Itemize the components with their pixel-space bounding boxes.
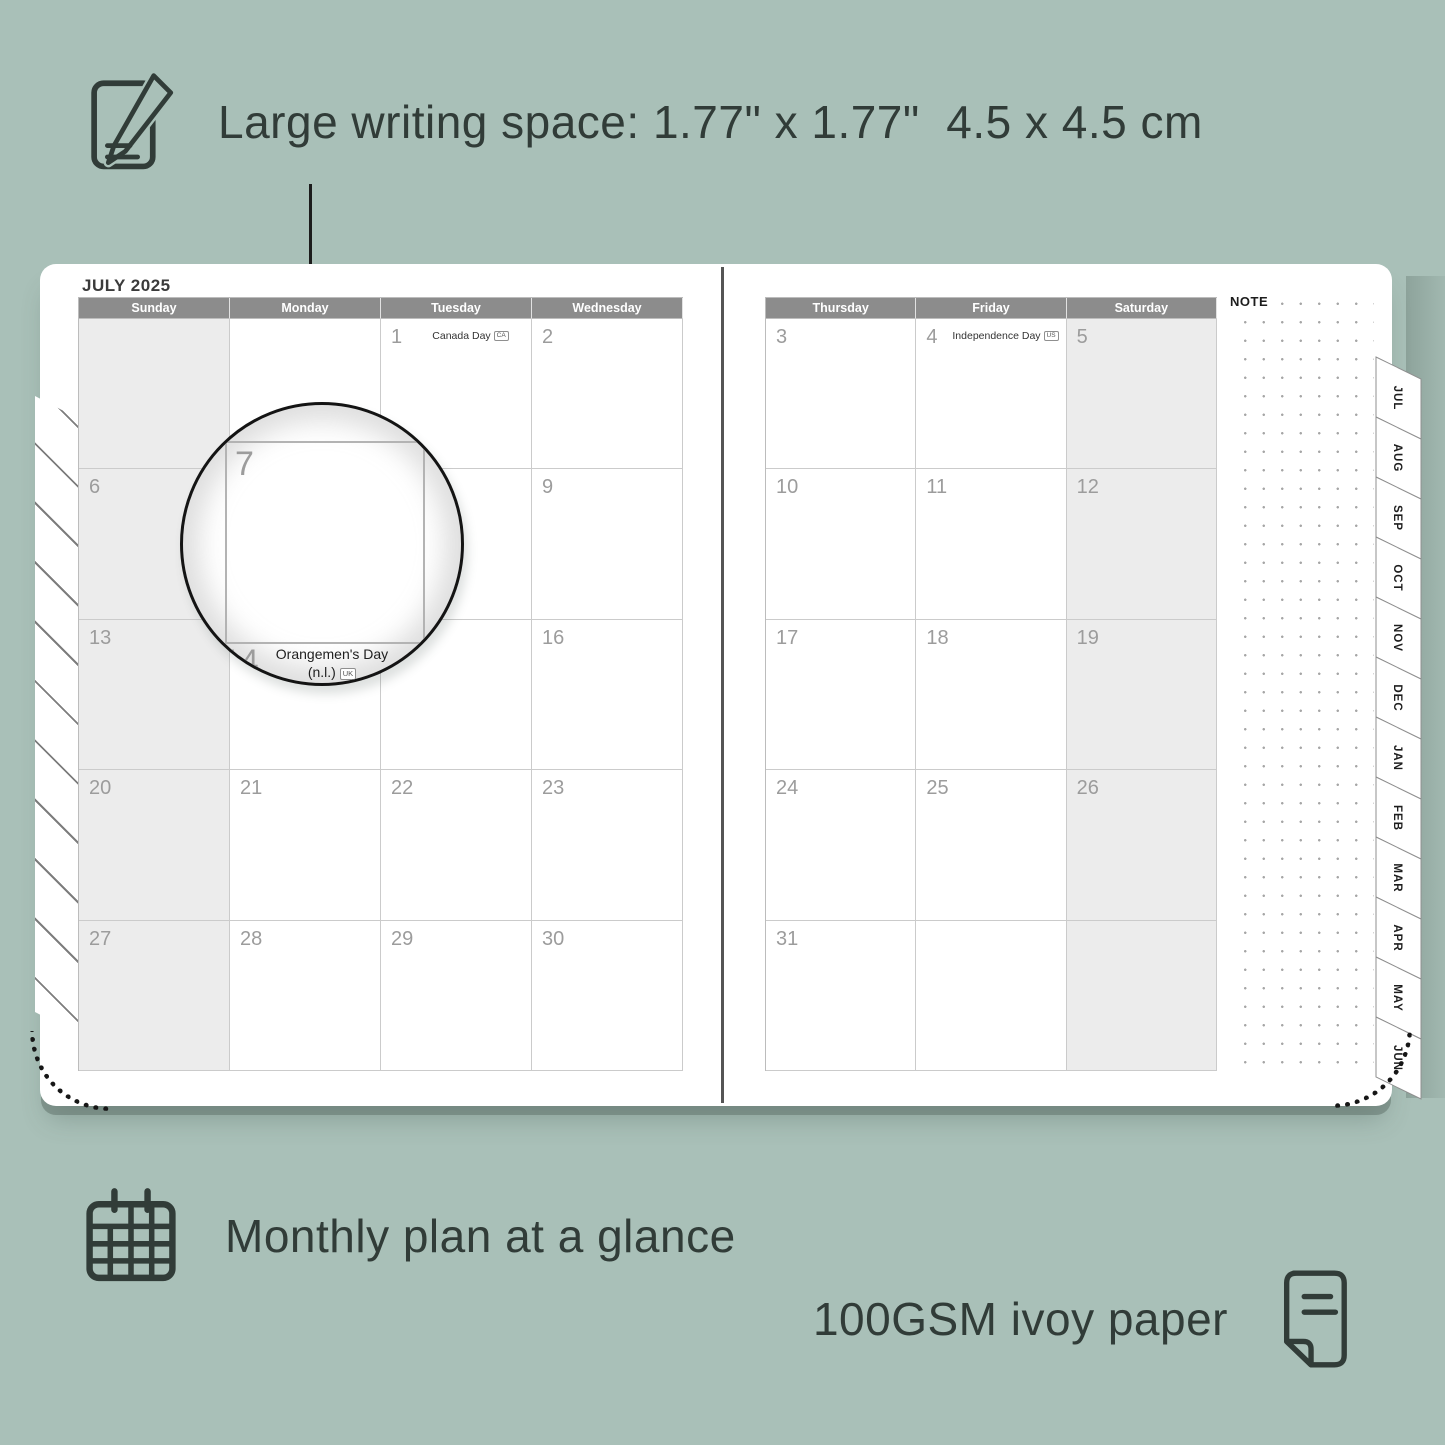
note-label: NOTE xyxy=(1230,294,1274,309)
holiday-label: Canada DayCA xyxy=(415,330,526,342)
day-number: 16 xyxy=(542,627,564,650)
paper-annotation: 100GSM ivoy paper xyxy=(813,1266,1352,1371)
holiday-label: Independence DayUS xyxy=(950,330,1060,342)
day-header: Saturday xyxy=(1067,298,1217,319)
day-number: 4 xyxy=(926,326,937,349)
calendar-cell: 17 xyxy=(766,620,916,770)
calendar-cell: 4Independence DayUS xyxy=(916,319,1066,469)
calendar-cell: 25 xyxy=(916,770,1066,920)
month-tabs: JULAUGSEPOCTNOVDECJANFEBMARAPRMAYJUN xyxy=(1375,357,1427,1103)
day-number: 22 xyxy=(391,777,413,800)
day-number: 13 xyxy=(89,627,111,650)
day-number: 3 xyxy=(776,326,787,349)
day-number: 25 xyxy=(926,777,948,800)
calendar-cell: 19 xyxy=(1067,620,1217,770)
day-number: 1 xyxy=(391,326,402,349)
paper-text: 100GSM ivoy paper xyxy=(813,1292,1228,1346)
calendar-cell: 5 xyxy=(1067,319,1217,469)
day-number: 21 xyxy=(240,777,262,800)
holiday-text: Independence Day xyxy=(952,330,1040,342)
calendar-cell: 12 xyxy=(1067,469,1217,619)
calendar-cell: 9 xyxy=(532,469,683,619)
day-number: 18 xyxy=(926,627,948,650)
month-tab-label: AUG xyxy=(1391,444,1403,473)
calendar-cell: 13 xyxy=(79,620,230,770)
monthly-plan-text: Monthly plan at a glance xyxy=(225,1209,736,1263)
calendar-cell: 31 xyxy=(766,921,916,1071)
day-number: 2 xyxy=(542,326,553,349)
day-number: 19 xyxy=(1077,627,1099,650)
day-number: 10 xyxy=(776,476,798,499)
right-month-grid: ThursdayFridaySaturday34Independence Day… xyxy=(765,297,1217,1071)
month-tab-label: FEB xyxy=(1391,805,1403,831)
planner-spread: JULY 2025 SundayMondayTuesdayWednesday1C… xyxy=(40,264,1392,1106)
page-edge-hatch xyxy=(35,396,81,1036)
magnified-holiday-line1: Orangemen's Day xyxy=(276,646,388,662)
day-header: Friday xyxy=(916,298,1066,319)
writing-space-text: Large writing space: 1.77" x 1.77" 4.5 x… xyxy=(218,95,1203,149)
day-number: 11 xyxy=(926,476,947,499)
day-number: 28 xyxy=(240,928,262,951)
calendar-cell xyxy=(1067,921,1217,1071)
calendar-icon xyxy=(85,1186,177,1286)
calendar-cell xyxy=(79,319,230,469)
day-number: 27 xyxy=(89,928,111,951)
day-number: 26 xyxy=(1077,777,1099,800)
month-tab-label: MAR xyxy=(1391,863,1403,892)
day-header: Monday xyxy=(230,298,381,319)
day-number: 12 xyxy=(1077,476,1099,499)
calendar-cell: 28 xyxy=(230,921,381,1071)
month-tab-label: JUL xyxy=(1391,386,1403,411)
calendar-cell: 24 xyxy=(766,770,916,920)
calendar-cell: 10 xyxy=(766,469,916,619)
calendar-cell: 30 xyxy=(532,921,683,1071)
calendar-cell: 2 xyxy=(532,319,683,469)
day-number: 31 xyxy=(776,928,798,951)
month-tab-label: MAY xyxy=(1391,984,1403,1012)
pencil-note-icon xyxy=(88,70,174,174)
calendar-cell: 29 xyxy=(381,921,532,1071)
day-header: Thursday xyxy=(766,298,916,319)
magnified-holiday-line2: (n.l.) xyxy=(308,664,336,680)
magnified-holiday: Orangemen's Day (n.l.) UK xyxy=(249,645,415,681)
day-number: 24 xyxy=(776,777,798,800)
calendar-cell: 20 xyxy=(79,770,230,920)
day-number: 5 xyxy=(1077,326,1088,349)
day-header: Tuesday xyxy=(381,298,532,319)
calendar-cell: 18 xyxy=(916,620,1066,770)
left-month-grid: SundayMondayTuesdayWednesday1Canada DayC… xyxy=(78,297,683,1071)
month-tab-label: APR xyxy=(1391,924,1403,951)
day-number: 20 xyxy=(89,777,111,800)
day-number: 17 xyxy=(776,627,798,650)
country-badge: CA xyxy=(494,331,509,342)
calendar-cell: 22 xyxy=(381,770,532,920)
book-spine xyxy=(721,267,724,1103)
magnified-day-number: 7 xyxy=(235,445,254,484)
day-header: Wednesday xyxy=(532,298,683,319)
monthly-plan-annotation: Monthly plan at a glance xyxy=(85,1186,736,1286)
day-number: 6 xyxy=(89,476,100,499)
magnifier-circle: 7 14 Orangemen's Day (n.l.) UK xyxy=(180,402,464,686)
writing-space-outline xyxy=(225,441,425,644)
country-badge: UK xyxy=(340,668,356,680)
month-tab-label: NOV xyxy=(1391,624,1403,652)
day-header: Sunday xyxy=(79,298,230,319)
product-image: Large writing space: 1.77" x 1.77" 4.5 x… xyxy=(0,0,1445,1445)
day-number: 30 xyxy=(542,928,564,951)
month-tab-label: SEP xyxy=(1391,505,1403,531)
paper-icon xyxy=(1274,1266,1352,1371)
calendar-cell: 11 xyxy=(916,469,1066,619)
holiday-text: Canada Day xyxy=(432,330,490,342)
calendar-cell: 3 xyxy=(766,319,916,469)
calendar-cell: 23 xyxy=(532,770,683,920)
day-number: 29 xyxy=(391,928,413,951)
country-badge: US xyxy=(1044,331,1059,342)
day-number: 9 xyxy=(542,476,553,499)
writing-space-annotation: Large writing space: 1.77" x 1.77" 4.5 x… xyxy=(88,70,1203,174)
note-area: NOTE xyxy=(1228,297,1374,1070)
calendar-cell: 21 xyxy=(230,770,381,920)
calendar-cell: 16 xyxy=(532,620,683,770)
calendar-cell xyxy=(916,921,1066,1071)
month-tab-label: OCT xyxy=(1391,564,1403,591)
month-tab-label: JAN xyxy=(1391,745,1403,771)
day-number: 23 xyxy=(542,777,564,800)
month-tab-label: DEC xyxy=(1391,684,1403,711)
calendar-cell: 26 xyxy=(1067,770,1217,920)
page-title: JULY 2025 xyxy=(82,276,171,296)
